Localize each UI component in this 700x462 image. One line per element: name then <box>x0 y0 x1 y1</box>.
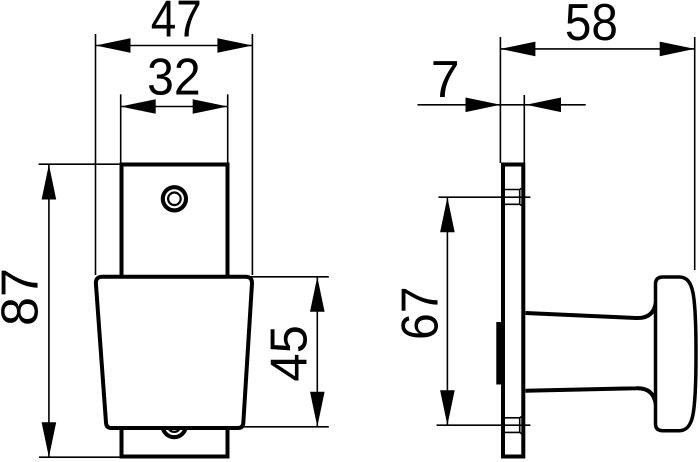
svg-text:45: 45 <box>260 325 318 382</box>
svg-text:58: 58 <box>565 0 618 52</box>
svg-text:67: 67 <box>391 286 449 340</box>
svg-text:7: 7 <box>431 51 460 109</box>
svg-text:87: 87 <box>0 268 50 326</box>
svg-text:32: 32 <box>147 49 201 107</box>
svg-text:47: 47 <box>151 0 202 48</box>
